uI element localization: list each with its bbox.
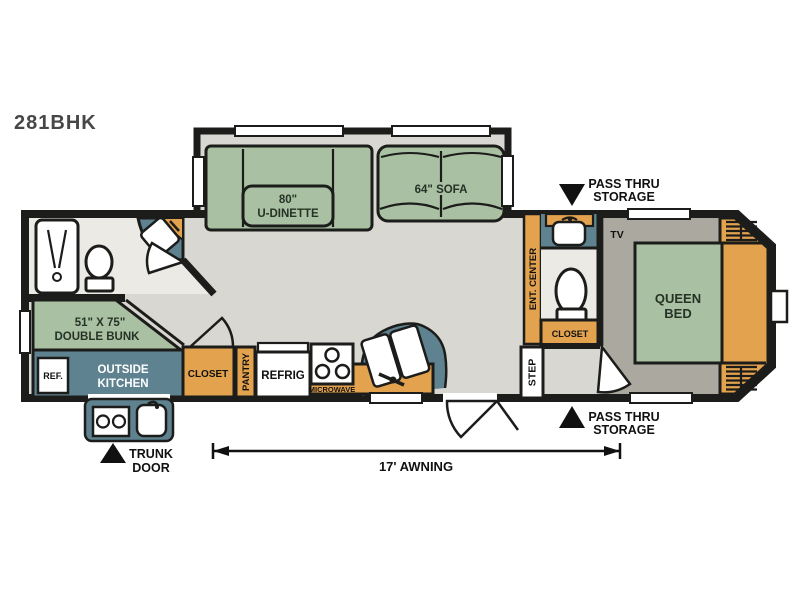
toilet-rear-tank [86,278,113,291]
tv-label: TV [610,229,623,241]
sofa-label: 64" SOFA [415,184,468,196]
bath-closet-label: CLOSET [552,329,589,339]
queen-bed-label-2: BED [664,306,691,321]
pantry-label: PANTRY [241,352,252,391]
pass-thru-bottom-label-2: STORAGE [593,423,655,437]
outside-sink [137,405,166,436]
burner-icon [336,365,349,378]
closet-label: CLOSET [188,369,229,380]
bunk-label: DOUBLE BUNK [55,331,141,343]
microwave-label: MICROWAVE [309,385,356,394]
mid-bath-faucet-base [568,217,572,221]
awning-label: 17' AWNING [379,459,453,474]
outside-kitchen-label-2: KITCHEN [97,378,148,390]
burner-icon [326,349,339,362]
outside-faucet-base [155,405,159,409]
window [502,156,513,206]
burner-icon [316,365,329,378]
front-window-bump [771,291,787,322]
window [235,126,343,136]
burner-icon [113,416,125,428]
step-label: STEP [527,359,539,386]
bunk-size-label: 51" X 75" [75,317,126,329]
toilet-rear [86,246,112,278]
pass-thru-bottom-label-1: PASS THRU [588,410,659,424]
kitchen-faucet-base [390,377,397,384]
trunk-door-label-1: TRUNK [129,447,173,461]
floorplan-drawing: 281BHK 51" X 75" DOUBLE BUNK REF. OUTSID… [0,0,800,600]
floorplan-page: 281BHK 51" X 75" DOUBLE BUNK REF. OUTSID… [0,0,800,600]
model-number-label: 281BHK [14,112,97,134]
queen-bed-label-1: QUEEN [655,291,701,306]
trunk-door-label-2: DOOR [132,461,170,475]
window [20,311,30,353]
dinette-label-2: U-DINETTE [257,208,319,220]
window [628,209,690,219]
ref-label: REF. [43,371,63,381]
mid-bath-sink [553,222,585,245]
window [630,393,692,403]
pass-thru-top-label-1: PASS THRU [588,177,659,191]
window [370,393,422,403]
dinette-label-1: 80" [279,194,297,206]
refrig-label: REFRIG [261,370,305,382]
ent-center-label: ENT. CENTER [528,248,539,310]
burner-icon [97,416,109,428]
shower-drain-icon [53,273,61,281]
pass-thru-top-label-2: STORAGE [593,190,655,204]
shower [36,220,78,293]
window [392,126,490,136]
toilet-mid [556,269,586,313]
dinette-table [243,186,333,226]
window [193,157,204,206]
outside-kitchen-label-1: OUTSIDE [97,364,148,376]
